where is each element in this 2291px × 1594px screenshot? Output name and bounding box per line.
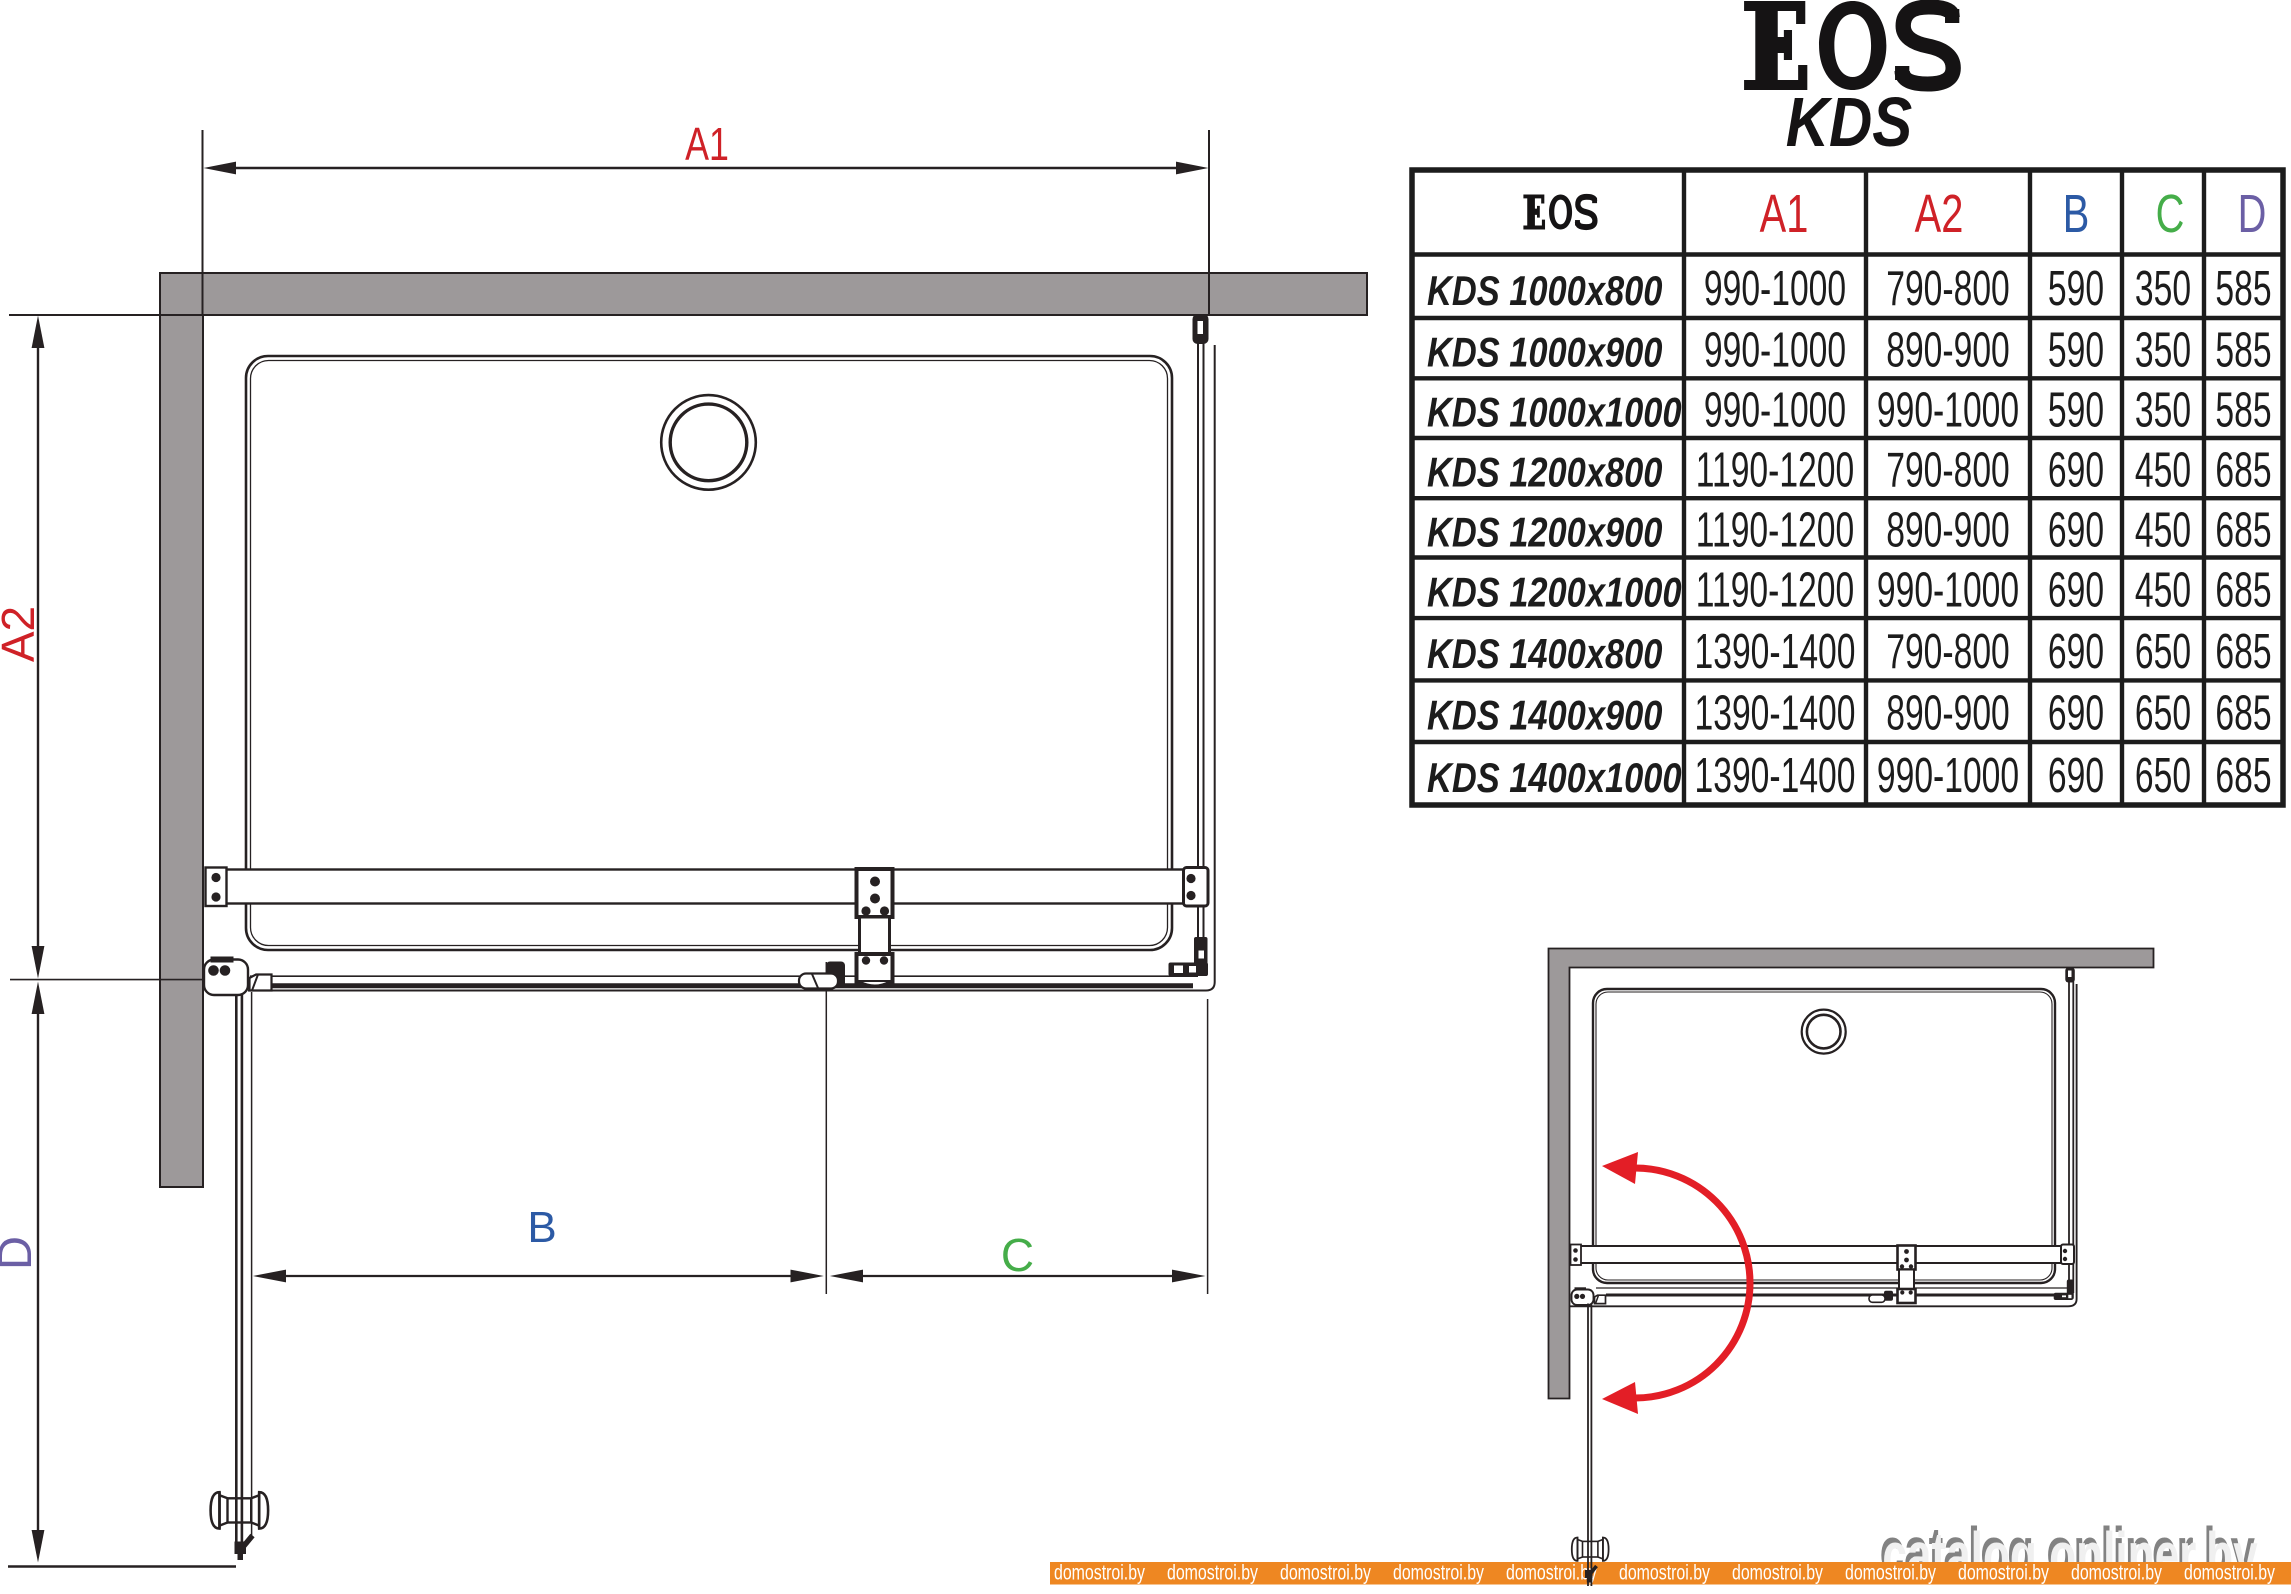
svg-text:A2: A2 [0, 606, 44, 662]
svg-text:1390-1400: 1390-1400 [1695, 623, 1856, 678]
svg-text:450: 450 [2135, 502, 2191, 557]
svg-text:990-1000: 990-1000 [1704, 382, 1846, 437]
svg-text:domostroi.by: domostroi.by [2071, 1562, 2162, 1585]
svg-text:KDS 1400x900: KDS 1400x900 [1427, 693, 1662, 740]
svg-text:790-800: 790-800 [1886, 260, 2009, 315]
svg-text:685: 685 [2215, 442, 2271, 497]
svg-text:590: 590 [2048, 260, 2104, 315]
svg-text:890-900: 890-900 [1886, 502, 2009, 557]
svg-text:890-900: 890-900 [1886, 685, 2009, 740]
svg-text:1190-1200: 1190-1200 [1696, 562, 1854, 617]
svg-text:990-1000: 990-1000 [1877, 382, 2019, 437]
svg-text:domostroi.by: domostroi.by [1054, 1562, 1145, 1585]
svg-text:650: 650 [2135, 685, 2191, 740]
svg-text:585: 585 [2215, 382, 2271, 437]
svg-text:790-800: 790-800 [1886, 623, 2009, 678]
svg-text:D: D [0, 1236, 41, 1270]
svg-text:B: B [2063, 184, 2090, 244]
svg-text:KDS 1200x900: KDS 1200x900 [1427, 509, 1662, 556]
svg-text:KDS 1000x900: KDS 1000x900 [1427, 330, 1662, 377]
svg-text:690: 690 [2048, 685, 2104, 740]
svg-text:685: 685 [2215, 502, 2271, 557]
svg-text:B: B [527, 1203, 556, 1252]
svg-text:domostroi.by: domostroi.by [1280, 1562, 1371, 1585]
svg-text:C: C [2156, 184, 2185, 244]
svg-text:1390-1400: 1390-1400 [1695, 685, 1856, 740]
svg-text:domostroi.by: domostroi.by [1958, 1562, 2049, 1585]
svg-text:KDS: KDS [1786, 83, 1912, 161]
svg-text:685: 685 [2215, 748, 2271, 803]
svg-text:KDS 1000x1000: KDS 1000x1000 [1427, 390, 1682, 437]
svg-text:685: 685 [2215, 623, 2271, 678]
svg-text:790-800: 790-800 [1886, 442, 2009, 497]
svg-text:690: 690 [2048, 748, 2104, 803]
svg-text:690: 690 [2048, 502, 2104, 557]
svg-text:A1: A1 [685, 117, 729, 170]
svg-text:685: 685 [2215, 562, 2271, 617]
svg-text:990-1000: 990-1000 [1704, 322, 1846, 377]
svg-text:KDS 1400x800: KDS 1400x800 [1427, 631, 1662, 678]
svg-text:350: 350 [2135, 260, 2191, 315]
svg-text:990-1000: 990-1000 [1704, 260, 1846, 315]
svg-text:350: 350 [2135, 322, 2191, 377]
svg-text:650: 650 [2135, 748, 2191, 803]
svg-text:450: 450 [2135, 442, 2191, 497]
svg-text:A1: A1 [1760, 184, 1809, 244]
svg-text:685: 685 [2215, 685, 2271, 740]
svg-text:domostroi.by: domostroi.by [1732, 1562, 1823, 1585]
svg-text:1390-1400: 1390-1400 [1695, 748, 1856, 803]
svg-text:890-900: 890-900 [1886, 322, 2009, 377]
svg-text:350: 350 [2135, 382, 2191, 437]
svg-text:690: 690 [2048, 442, 2104, 497]
svg-text:domostroi.by: domostroi.by [2184, 1562, 2275, 1585]
svg-text:KDS 1200x800: KDS 1200x800 [1427, 449, 1662, 496]
svg-text:690: 690 [2048, 562, 2104, 617]
svg-text:KDS 1400x1000: KDS 1400x1000 [1427, 755, 1682, 802]
svg-text:domostroi.by: domostroi.by [1845, 1562, 1936, 1585]
svg-text:domostroi.by: domostroi.by [1393, 1562, 1484, 1585]
svg-text:D: D [2238, 184, 2267, 244]
svg-text:450: 450 [2135, 562, 2191, 617]
svg-text:690: 690 [2048, 623, 2104, 678]
svg-text:1190-1200: 1190-1200 [1696, 502, 1854, 557]
svg-text:585: 585 [2215, 260, 2271, 315]
svg-text:C: C [1001, 1229, 1034, 1281]
svg-text:domostroi.by: domostroi.by [1506, 1562, 1597, 1585]
svg-text:650: 650 [2135, 623, 2191, 678]
svg-text:domostroi.by: domostroi.by [1167, 1562, 1258, 1585]
svg-text:990-1000: 990-1000 [1877, 562, 2019, 617]
svg-text:1190-1200: 1190-1200 [1696, 442, 1854, 497]
svg-text:590: 590 [2048, 382, 2104, 437]
svg-text:590: 590 [2048, 322, 2104, 377]
svg-text:domostroi.by: domostroi.by [1619, 1562, 1710, 1585]
svg-text:990-1000: 990-1000 [1877, 748, 2019, 803]
svg-text:KDS 1200x1000: KDS 1200x1000 [1427, 569, 1682, 616]
svg-text:A2: A2 [1915, 184, 1964, 244]
svg-text:KDS 1000x800: KDS 1000x800 [1427, 268, 1662, 315]
svg-text:585: 585 [2215, 322, 2271, 377]
